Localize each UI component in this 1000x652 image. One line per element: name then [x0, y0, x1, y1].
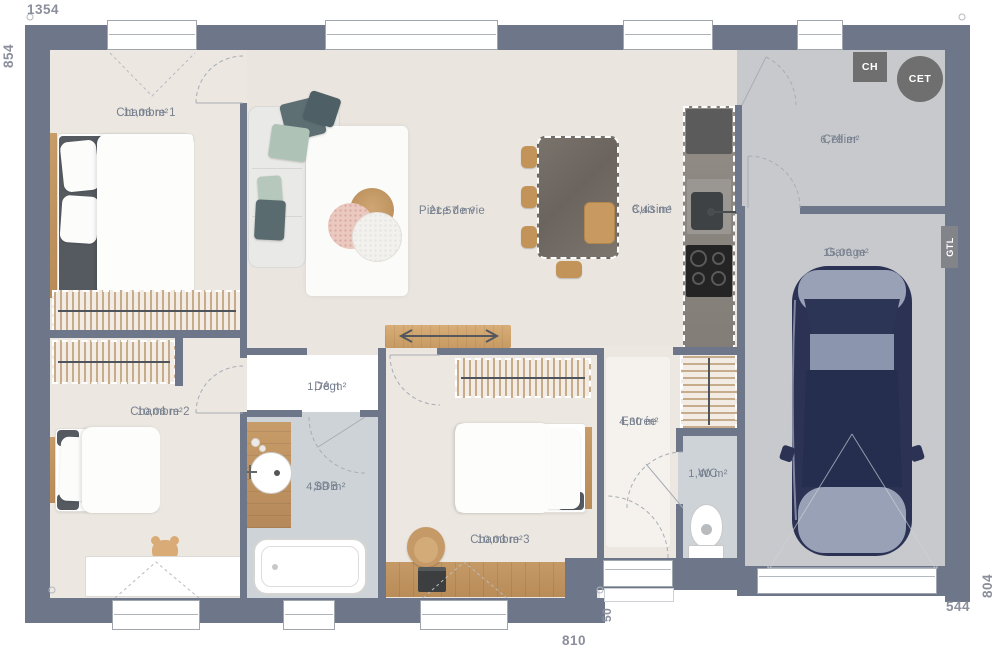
dimension-entrance-step: 50 — [600, 596, 614, 622]
door-arc-cellier-garage — [748, 156, 800, 208]
floor-plan: CH CET GTL — [0, 0, 1000, 652]
car — [779, 266, 925, 556]
window-marks — [110, 53, 507, 598]
door-arc-chambre1 — [196, 56, 243, 103]
window-mark-chambre2 — [115, 562, 199, 598]
door-leaf-sdb — [318, 417, 365, 447]
dimension-right: 804 — [980, 554, 995, 598]
door-arc-wc — [627, 452, 683, 508]
dimension-mark — [959, 14, 965, 20]
door-leaf-wc — [646, 464, 683, 508]
dimension-mark — [49, 587, 55, 593]
dimension-top: 1354 — [27, 2, 59, 17]
plan-annotations — [0, 0, 1000, 652]
car-windshield — [802, 370, 902, 487]
door-arc-chambre2 — [196, 366, 243, 413]
car-roof — [810, 334, 894, 370]
car-hood — [798, 487, 906, 553]
door-arc-cellier — [766, 57, 796, 105]
window-mark-chambre1 — [110, 53, 195, 96]
door-arc-front — [606, 496, 668, 558]
door-arc-sdb — [309, 417, 365, 473]
car-rear-window — [804, 299, 900, 334]
door-arc-chambre3 — [390, 355, 440, 405]
dimension-bottom: 810 — [562, 633, 586, 648]
door-leaf-cellier — [742, 57, 766, 105]
dimension-bottom-right: 544 — [946, 599, 970, 614]
window-mark-chambre3 — [423, 562, 507, 598]
dimension-left: 854 — [1, 24, 16, 68]
dimension-mark — [597, 587, 603, 593]
bench-arrows — [401, 330, 497, 342]
door-swings — [196, 56, 800, 558]
